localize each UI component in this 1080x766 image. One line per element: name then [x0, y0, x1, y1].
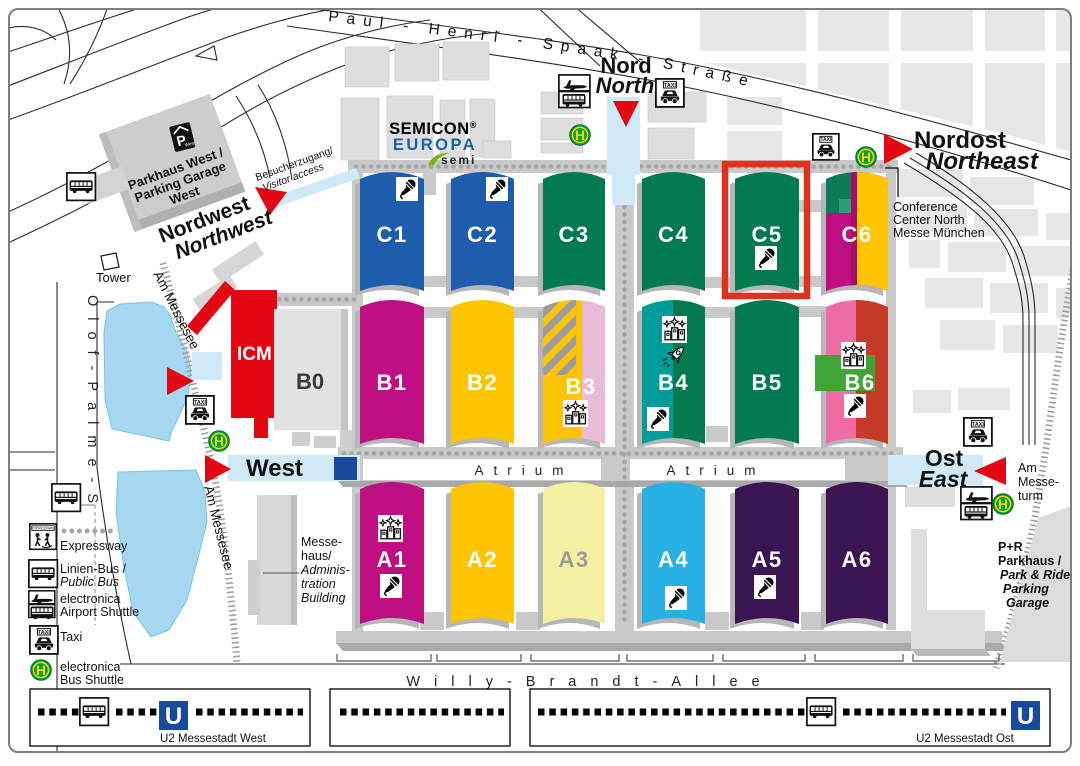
svg-text:Conference: Conference	[893, 200, 958, 214]
svg-text:Airport Shuttle: Airport Shuttle	[60, 605, 139, 619]
svg-text:Center North: Center North	[893, 213, 965, 227]
svg-text:Willy-Brandt-Allee: Willy-Brandt-Allee	[406, 674, 773, 690]
svg-text:Am: Am	[1018, 461, 1037, 475]
svg-text:C5: C5	[751, 222, 782, 247]
svg-text:C3: C3	[558, 222, 589, 247]
svg-text:B5: B5	[751, 370, 782, 395]
svg-text:Messe-: Messe-	[301, 535, 342, 549]
svg-text:Adminis-: Adminis-	[300, 563, 350, 577]
svg-text:Expressway: Expressway	[60, 539, 128, 553]
svg-text:Atrium: Atrium	[666, 463, 765, 478]
svg-text:A4: A4	[658, 547, 689, 572]
svg-text:C1: C1	[376, 222, 407, 247]
svg-text:B4: B4	[658, 370, 689, 395]
svg-text:A6: A6	[841, 547, 872, 572]
svg-text:Public Bus: Public Bus	[60, 575, 119, 589]
svg-text:Bus Shuttle: Bus Shuttle	[60, 673, 124, 687]
svg-text:C4: C4	[658, 222, 689, 247]
svg-text:B3: B3	[565, 374, 596, 399]
svg-text:EUROPA: EUROPA	[393, 136, 477, 154]
svg-text:Atrium: Atrium	[474, 463, 573, 478]
svg-text:A1: A1	[376, 547, 407, 572]
svg-text:Taxi: Taxi	[60, 630, 82, 644]
svg-text:B2: B2	[467, 370, 498, 395]
svg-text:Northeast: Northeast	[926, 148, 1039, 175]
svg-text:U2 Messestadt Ost: U2 Messestadt Ost	[916, 733, 1015, 745]
svg-text:electronica: electronica	[60, 660, 120, 674]
svg-text:P+R: P+R	[998, 540, 1023, 554]
svg-text:U2 Messestadt West: U2 Messestadt West	[160, 733, 267, 745]
svg-text:Park & Ride: Park & Ride	[1000, 568, 1070, 582]
svg-text:Tower: Tower	[96, 270, 131, 285]
svg-text:A5: A5	[751, 547, 782, 572]
svg-text:Messe München: Messe München	[893, 226, 985, 240]
svg-text:Parking: Parking	[1003, 582, 1049, 596]
svg-text:haus/: haus/	[301, 549, 332, 563]
svg-text:West: West	[246, 455, 303, 482]
svg-text:ICM: ICM	[237, 344, 272, 365]
svg-text:semi: semi	[441, 153, 476, 167]
svg-text:U: U	[1017, 703, 1034, 730]
svg-text:Parkhaus /: Parkhaus /	[998, 554, 1062, 568]
svg-text:North: North	[596, 73, 655, 98]
svg-text:tration: tration	[301, 577, 336, 591]
svg-text:C2: C2	[467, 222, 498, 247]
svg-text:A2: A2	[467, 547, 498, 572]
svg-text:B0: B0	[296, 369, 324, 394]
svg-text:Linien-Bus /: Linien-Bus /	[60, 562, 127, 576]
svg-text:A3: A3	[558, 547, 589, 572]
svg-text:U: U	[165, 703, 182, 730]
svg-text:Building: Building	[301, 591, 346, 605]
svg-text:B6: B6	[844, 370, 875, 395]
svg-text:Garage: Garage	[1006, 596, 1049, 610]
svg-text:C6: C6	[841, 222, 872, 247]
svg-text:Olof-Palme-S: Olof-Palme-S	[84, 295, 100, 514]
svg-text:B1: B1	[376, 370, 407, 395]
svg-text:Messe-: Messe-	[1018, 475, 1059, 489]
svg-text:electronica: electronica	[60, 592, 120, 606]
svg-text:turm: turm	[1018, 489, 1043, 503]
